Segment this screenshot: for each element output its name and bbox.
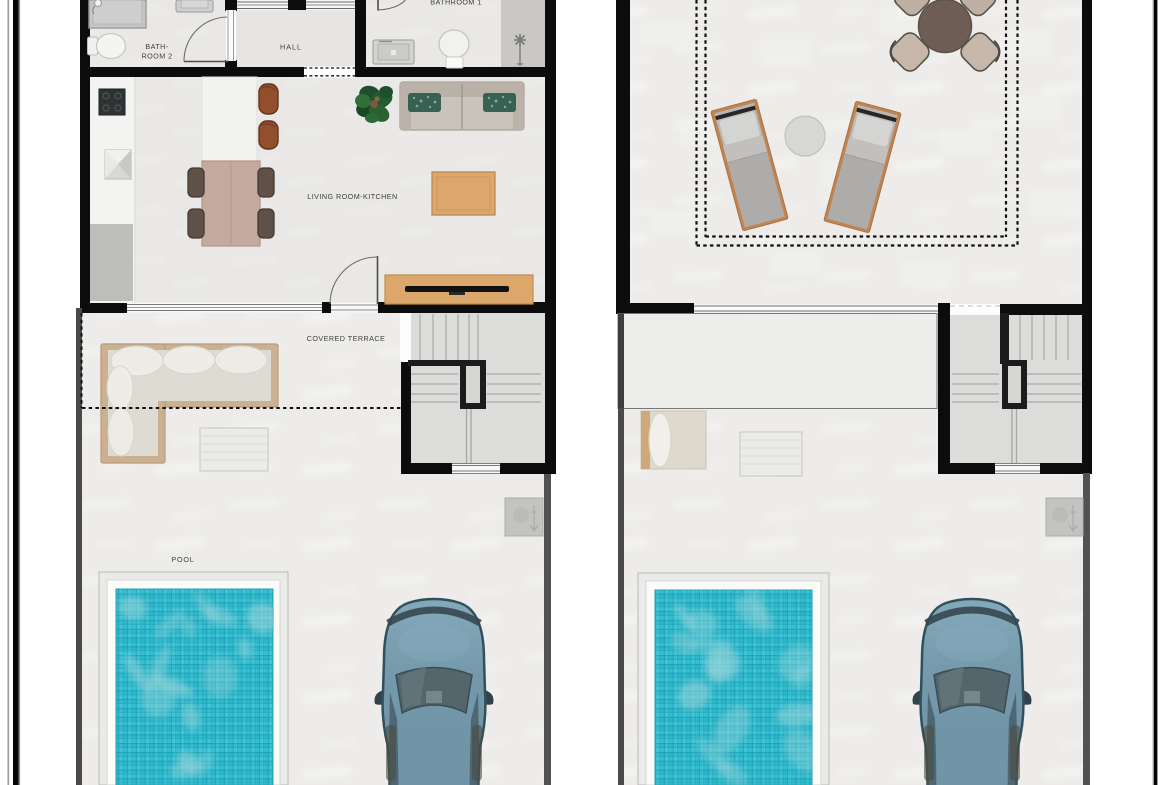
svg-text:ROOM 2: ROOM 2 bbox=[141, 52, 172, 61]
svg-text:POOL: POOL bbox=[171, 555, 194, 564]
svg-text:BATH-: BATH- bbox=[145, 42, 168, 51]
svg-text:LIVING ROOM-KITCHEN: LIVING ROOM-KITCHEN bbox=[307, 192, 397, 201]
svg-text:BATHROOM 1: BATHROOM 1 bbox=[430, 0, 482, 7]
svg-text:HALL: HALL bbox=[280, 43, 302, 52]
svg-text:COVERED TERRACE: COVERED TERRACE bbox=[307, 334, 386, 343]
